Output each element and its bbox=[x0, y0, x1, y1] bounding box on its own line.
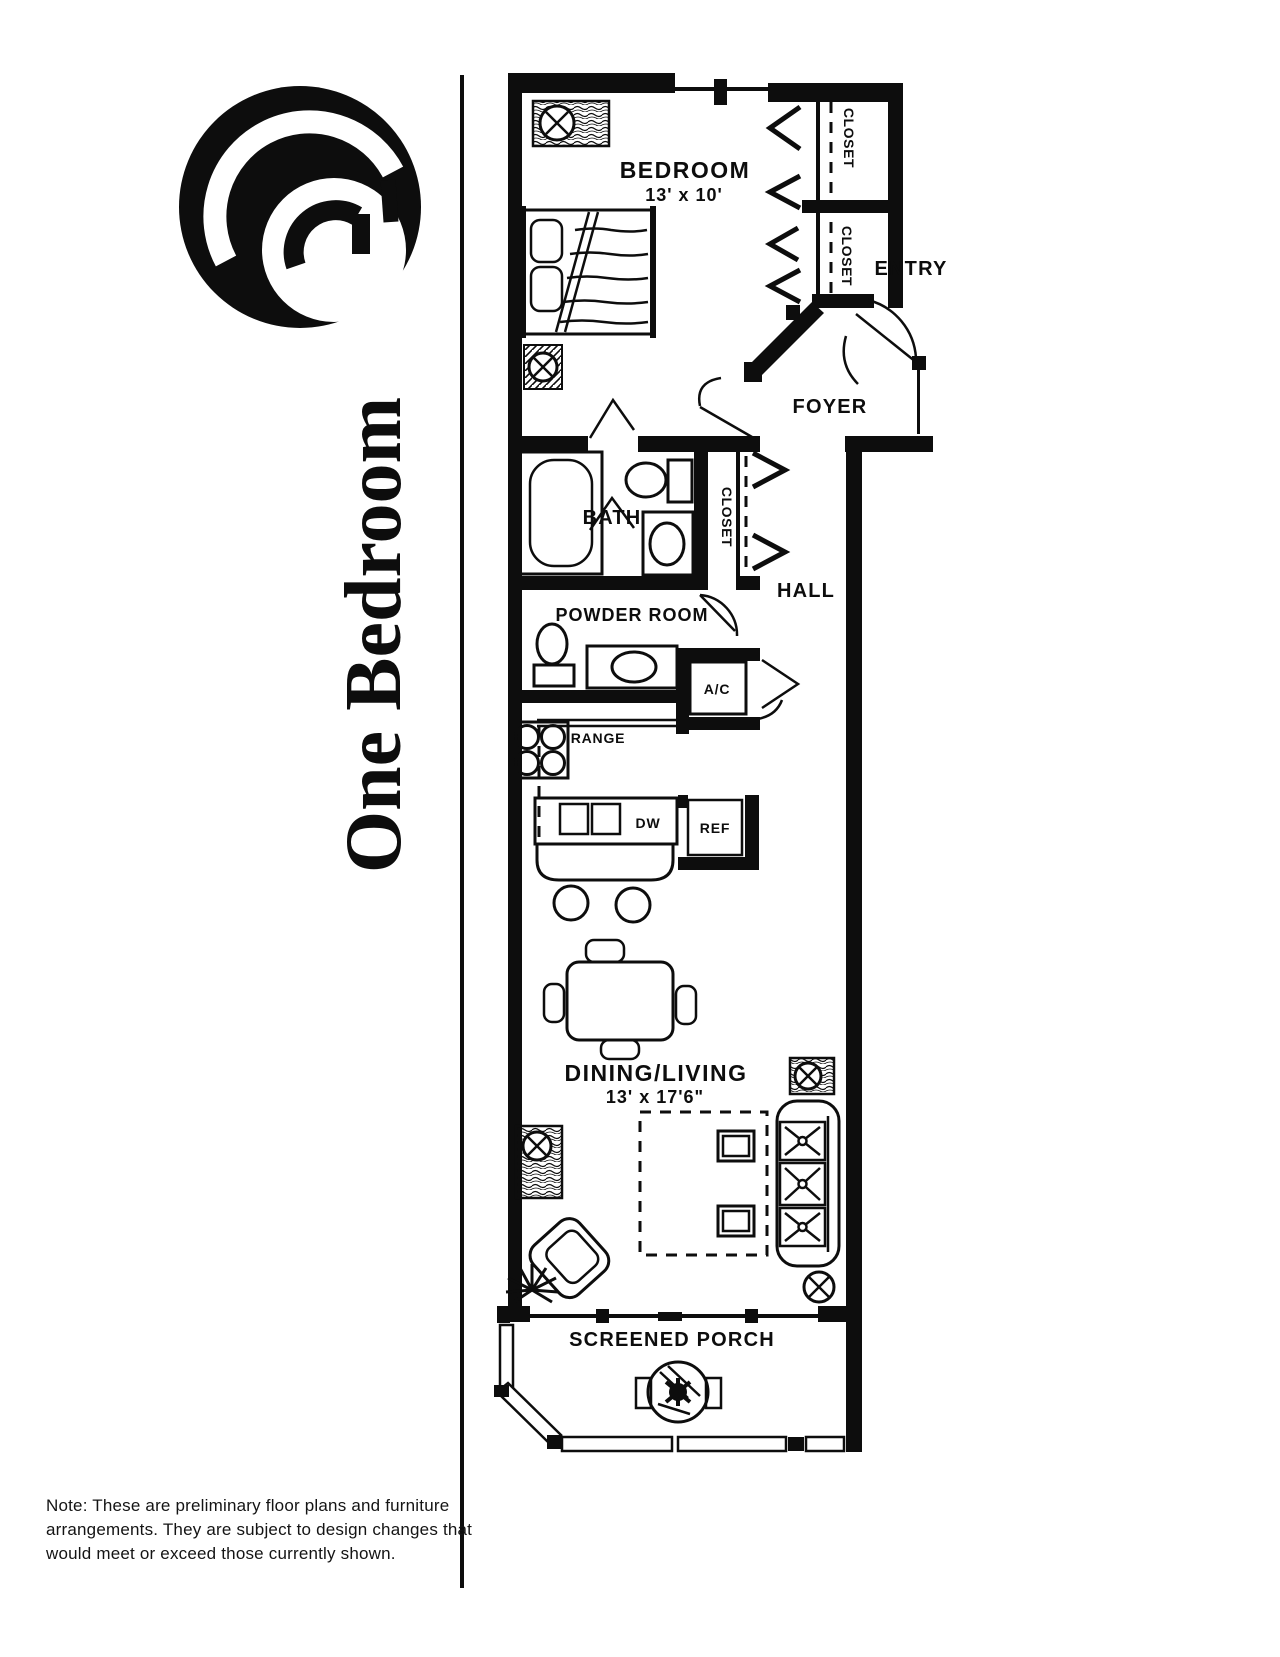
label-range: RANGE bbox=[571, 730, 626, 746]
label-foyer: FOYER bbox=[793, 396, 868, 418]
walls bbox=[494, 73, 933, 1452]
label-hall: HALL bbox=[777, 580, 835, 602]
label-ref: REF bbox=[700, 820, 730, 836]
label-entry: ENTRY bbox=[874, 258, 947, 280]
toilet-bath bbox=[626, 460, 692, 502]
bedroom-dresser-fixture bbox=[533, 101, 609, 146]
label-bath: BATH bbox=[583, 507, 642, 529]
thermostat-fixture-icon bbox=[804, 1272, 834, 1302]
toilet-powder bbox=[534, 624, 574, 686]
label-dw: DW bbox=[636, 815, 661, 831]
label-ac: A/C bbox=[704, 681, 731, 697]
bath-vanity-sink bbox=[643, 512, 693, 575]
divider-line bbox=[460, 75, 464, 1588]
floorplan-page: One Bedroom bbox=[0, 0, 1280, 1657]
label-bedroom: BEDROOM bbox=[620, 157, 751, 183]
label-dining-living: DINING/LIVING bbox=[564, 1060, 747, 1086]
sofa bbox=[777, 1101, 839, 1266]
label-dining-size: 13' x 17'6" bbox=[606, 1087, 704, 1107]
disclaimer-note: Note: These are preliminary floor plans … bbox=[46, 1494, 482, 1566]
living-speaker-fixture bbox=[790, 1058, 834, 1094]
label-closet-mid: CLOSET bbox=[839, 226, 855, 286]
wave-swirl-logo-icon bbox=[179, 86, 421, 328]
label-closet-hall: CLOSET bbox=[719, 487, 735, 547]
label-closet-top: CLOSET bbox=[841, 108, 857, 168]
page-title: One Bedroom bbox=[330, 397, 418, 873]
bedroom-fixture-icon bbox=[524, 345, 562, 389]
label-bedroom-size: 13' x 10' bbox=[645, 185, 723, 205]
area-rug bbox=[640, 1112, 767, 1255]
bed bbox=[520, 206, 656, 338]
powder-vanity-sink bbox=[587, 646, 677, 688]
dining-table-set bbox=[544, 940, 696, 1059]
porch-table-set bbox=[636, 1362, 721, 1422]
label-powder-room: POWDER ROOM bbox=[556, 605, 709, 625]
label-screened-porch: SCREENED PORCH bbox=[569, 1329, 775, 1351]
floorplan-drawing: One Bedroom bbox=[0, 0, 1280, 1657]
living-cabinet-fixture bbox=[516, 1126, 562, 1198]
side-tables bbox=[718, 1131, 754, 1236]
